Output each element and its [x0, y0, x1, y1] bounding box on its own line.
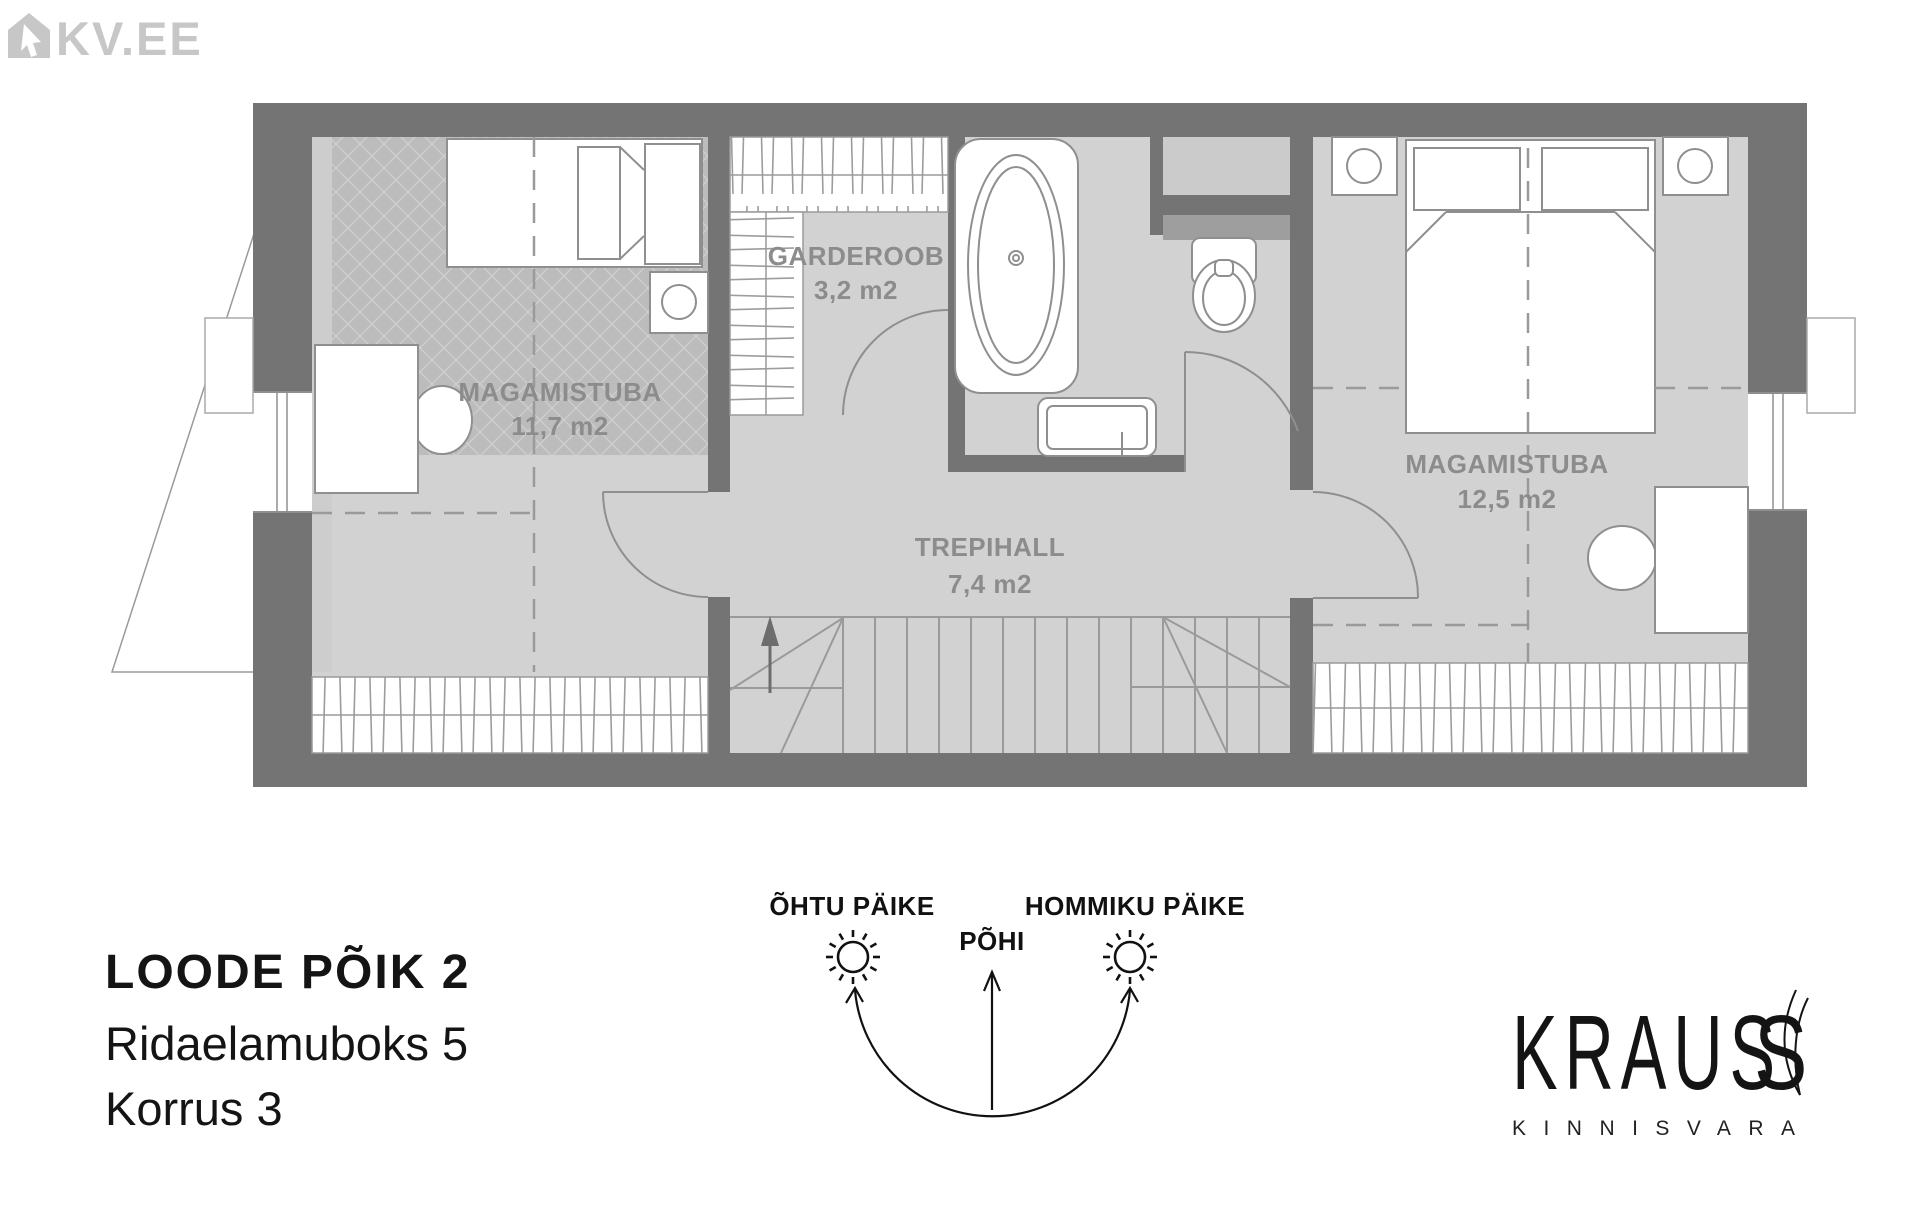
wall-bathroom-bedroom2-upper	[1290, 137, 1313, 490]
bed-double	[1406, 140, 1655, 433]
room-stair-hall-area: 7,4 m2	[948, 569, 1032, 599]
wall-bedroom1-hall-upper	[708, 137, 730, 492]
compass-morning-label: HOMMIKU PÄIKE	[1025, 891, 1245, 921]
compass-north-label: PÕHI	[959, 926, 1025, 956]
bathtub	[955, 139, 1078, 393]
title-floor: Korrus 3	[105, 1082, 283, 1135]
kv-logo: KV.EE	[8, 12, 203, 65]
bed-single	[447, 139, 702, 267]
closet-wardrobe-top	[730, 137, 948, 212]
headboard	[645, 144, 700, 264]
wall-bathroom-bedroom2-lower	[1290, 598, 1313, 753]
room-wardrobe-area: 3,2 m2	[814, 275, 898, 305]
wall-niche-sliver	[1150, 137, 1163, 235]
window-right	[1748, 393, 1807, 510]
lamp-icon	[662, 285, 696, 319]
kraus-logo-text: KRAUS	[1512, 993, 1782, 1111]
floor-plan-page: KV.EE	[0, 0, 1920, 1207]
room-bedroom-2-area: 12,5 m2	[1458, 484, 1557, 514]
title-block: LOODE PÕIK 2 Ridaelamuboks 5 Korrus 3	[105, 944, 470, 1135]
nightstand	[1663, 137, 1728, 195]
floor-plan-canvas: KV.EE	[0, 0, 1920, 1207]
window-right-sill	[1807, 318, 1855, 413]
title-unit: Ridaelamuboks 5	[105, 1017, 468, 1070]
desk	[315, 345, 418, 493]
kv-logo-text: KV.EE	[56, 12, 203, 65]
wall-bedroom1-hall-lower	[708, 597, 730, 753]
compass-evening-label: ÕHTU PÄIKE	[769, 891, 934, 921]
window-left	[253, 392, 312, 512]
sun-icon	[1103, 930, 1157, 984]
wall-right-lower	[1748, 510, 1807, 753]
toilet	[1192, 238, 1256, 332]
nightstand	[1332, 137, 1397, 195]
room-stair-hall-label: TREPIHALL	[915, 532, 1065, 562]
desk	[1655, 487, 1748, 633]
room-bedroom-1-area: 11,7 m2	[511, 411, 608, 441]
wall-niche-band-medium	[1163, 215, 1290, 240]
kraus-logo-subtext: KINNISVARA	[1512, 1117, 1806, 1140]
title-address: LOODE PÕIK 2	[105, 944, 470, 999]
wall-right-upper	[1748, 103, 1807, 393]
kv-house-cursor-icon	[8, 13, 50, 58]
bathroom-niche-floor	[1163, 137, 1290, 195]
room-bedroom-2-label: MAGAMISTUBA	[1405, 449, 1608, 479]
north-arrow-icon	[984, 972, 1000, 1110]
lamp-icon	[1678, 149, 1712, 183]
wall-top	[253, 103, 1807, 137]
room-wardrobe-label: GARDEROOB	[768, 241, 944, 271]
lamp-icon	[1347, 149, 1381, 183]
kraus-logo: KRAUS S KINNISVARA	[1512, 990, 1808, 1140]
wall-left-upper	[253, 103, 312, 392]
wall-bathroom-bottom	[948, 455, 1185, 472]
room-bedroom-1-label: MAGAMISTUBA	[458, 377, 661, 407]
wall-bottom	[253, 753, 1807, 787]
sun-icon	[826, 930, 880, 984]
pillow	[1542, 148, 1648, 210]
closet-bedroom-1	[312, 677, 708, 753]
wall-niche-band	[1163, 195, 1290, 215]
closet-bedroom-2	[1313, 663, 1748, 753]
chair	[1588, 526, 1656, 590]
washbasin	[1038, 398, 1156, 456]
window-left-sill	[205, 318, 253, 413]
pillow	[1414, 148, 1520, 210]
compass: ÕHTU PÄIKE HOMMIKU PÄIKE PÕHI	[769, 891, 1245, 1116]
wall-left-lower	[253, 512, 312, 753]
pillow	[578, 147, 620, 259]
nightstand	[650, 272, 708, 333]
